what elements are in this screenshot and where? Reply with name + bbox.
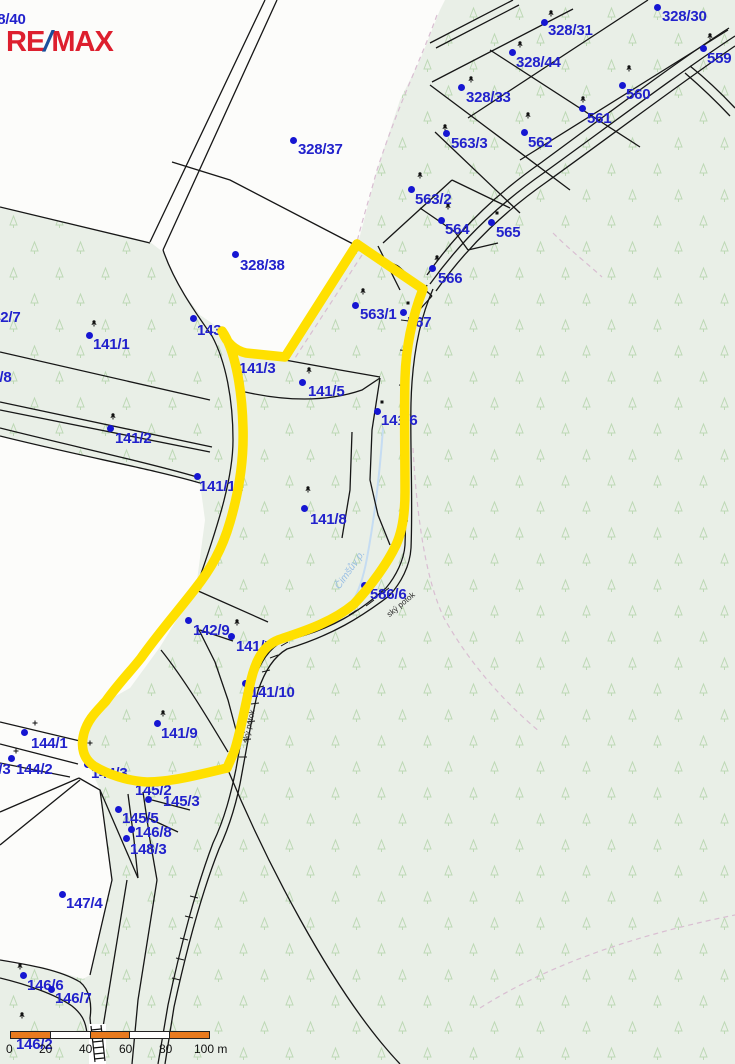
map-base-layer	[0, 0, 735, 1064]
scale-bar-segment	[11, 1032, 51, 1038]
scale-bar-label: 80	[159, 1042, 172, 1056]
cadastral-map[interactable]: 328/40328/31328/30559328/44328/335605615…	[0, 0, 735, 1064]
scale-bar-segment	[91, 1032, 131, 1038]
scale-bar-segment	[51, 1032, 91, 1038]
remax-logo-re: RE	[6, 26, 44, 58]
remax-logo: RE/MAX	[6, 26, 113, 59]
scale-bar-label: 0	[6, 1042, 13, 1056]
remax-logo-max: MAX	[51, 26, 112, 58]
scale-bar-segment	[170, 1032, 209, 1038]
scale-bar-label: 100 m	[194, 1042, 227, 1056]
scale-bar-label: 60	[119, 1042, 132, 1056]
scale-bar-labels: 020406080100 m	[0, 1042, 260, 1058]
scale-bar-label: 20	[39, 1042, 52, 1056]
scale-bar	[10, 1031, 210, 1039]
scale-bar-segment	[130, 1032, 170, 1038]
scale-bar-label: 40	[79, 1042, 92, 1056]
